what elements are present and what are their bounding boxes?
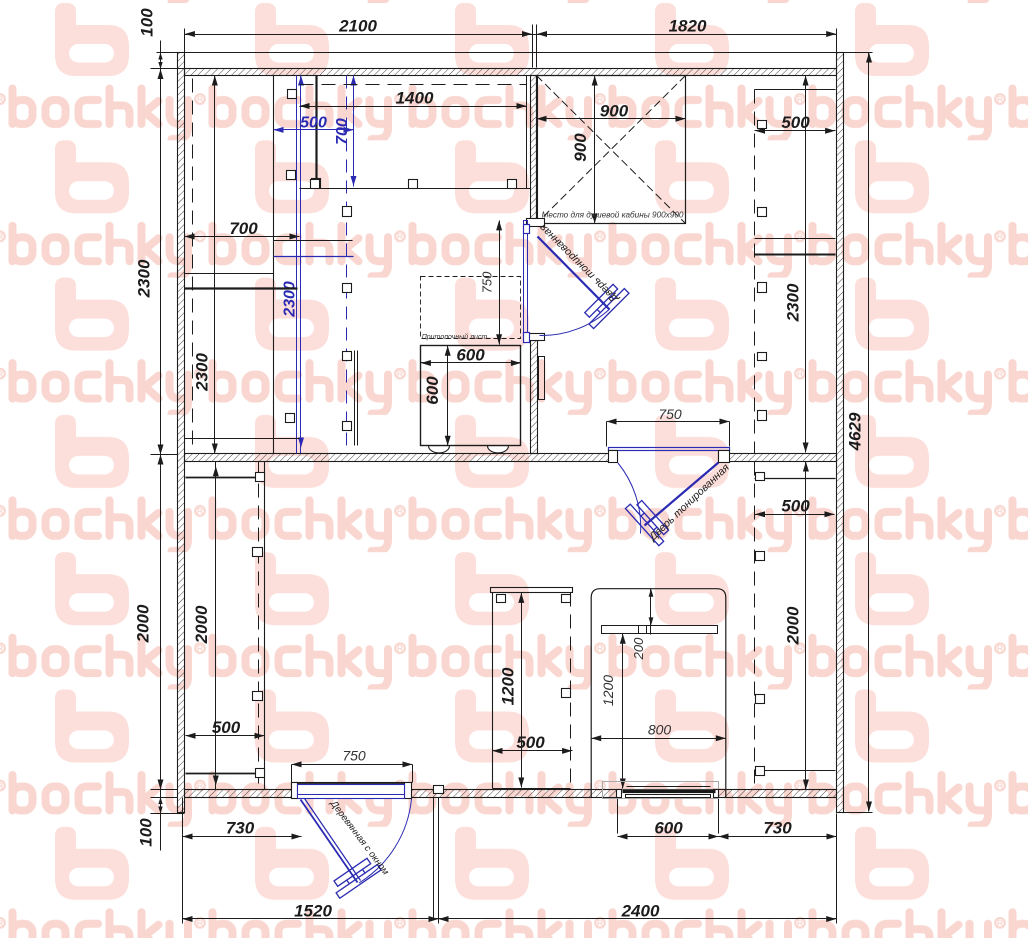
svg-text:2300: 2300 — [784, 283, 803, 322]
svg-text:500: 500 — [212, 718, 241, 737]
svg-text:700: 700 — [334, 118, 351, 145]
svg-text:200: 200 — [631, 637, 646, 660]
svg-text:730: 730 — [226, 819, 255, 838]
svg-text:2400: 2400 — [621, 902, 660, 921]
svg-text:1820: 1820 — [669, 17, 707, 36]
svg-text:2000: 2000 — [134, 604, 153, 643]
svg-text:900: 900 — [600, 102, 629, 121]
svg-text:Притопочный лист: Притопочный лист — [422, 333, 488, 341]
svg-text:750: 750 — [480, 271, 495, 293]
svg-text:2000: 2000 — [784, 606, 803, 645]
svg-text:750: 750 — [342, 748, 366, 764]
svg-text:4629: 4629 — [846, 412, 865, 451]
svg-text:2000: 2000 — [192, 605, 211, 644]
svg-text:1400: 1400 — [396, 89, 434, 108]
svg-text:2300: 2300 — [193, 353, 212, 392]
svg-text:2100: 2100 — [338, 17, 377, 36]
svg-text:600: 600 — [654, 819, 683, 838]
svg-text:500: 500 — [516, 733, 545, 752]
svg-text:2300: 2300 — [135, 259, 154, 298]
svg-text:750: 750 — [658, 406, 682, 422]
svg-text:600: 600 — [423, 376, 442, 405]
svg-text:900: 900 — [571, 133, 590, 162]
svg-text:100: 100 — [138, 8, 157, 37]
svg-text:500: 500 — [300, 115, 327, 132]
svg-text:1200: 1200 — [499, 667, 518, 705]
svg-text:1200: 1200 — [600, 675, 616, 706]
svg-text:Место для душевой кабины 900х9: Место для душевой кабины 900х900 — [542, 211, 684, 220]
svg-text:700: 700 — [229, 219, 258, 238]
svg-text:800: 800 — [648, 722, 672, 738]
svg-text:600: 600 — [456, 346, 485, 365]
svg-text:2300: 2300 — [282, 281, 299, 318]
svg-text:100: 100 — [137, 818, 156, 847]
svg-text:1520: 1520 — [294, 902, 332, 921]
svg-text:730: 730 — [763, 819, 792, 838]
